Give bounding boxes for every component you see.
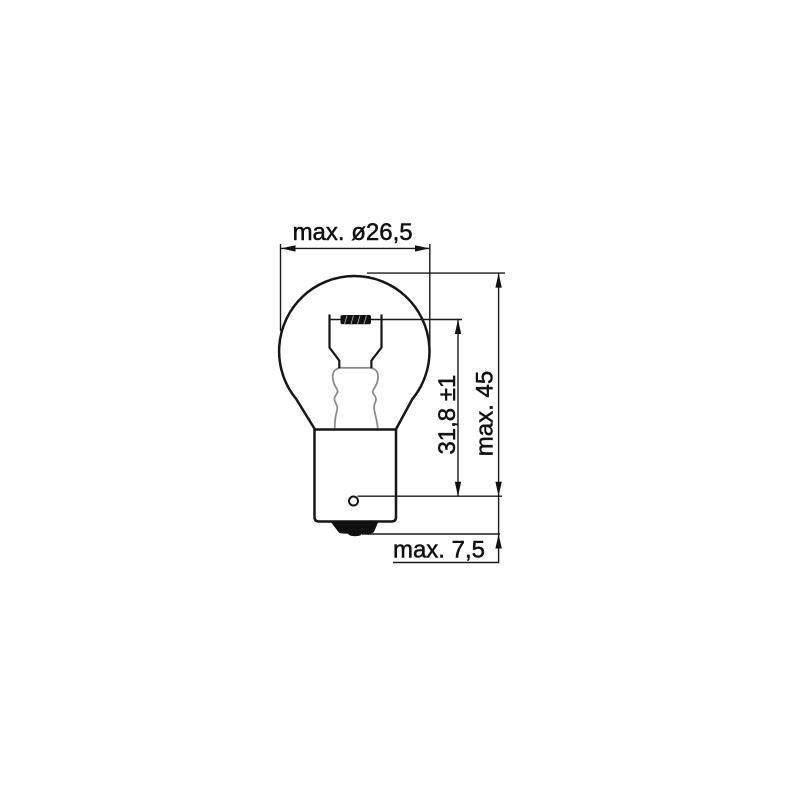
svg-text:max. 7,5: max. 7,5 bbox=[393, 537, 485, 564]
svg-text:max. ø26,5: max. ø26,5 bbox=[293, 219, 413, 246]
svg-text:31,8 ±1: 31,8 ±1 bbox=[434, 375, 461, 455]
svg-text:max. 45: max. 45 bbox=[472, 371, 499, 456]
